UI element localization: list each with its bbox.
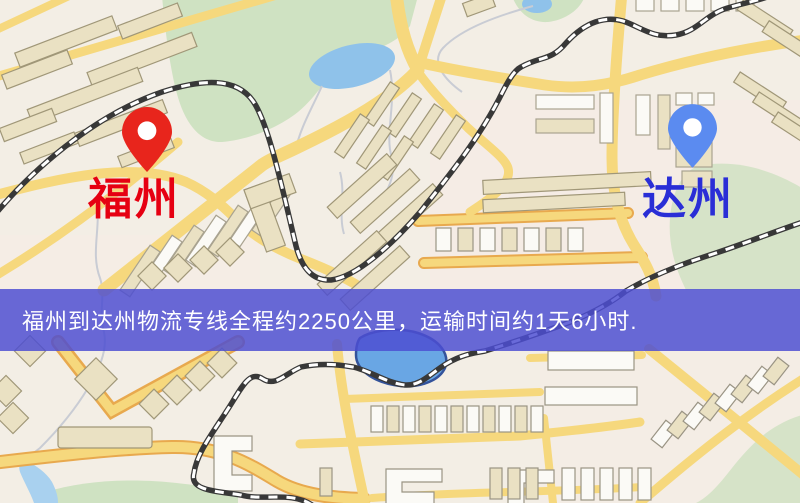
origin-label: 福州 <box>88 178 180 222</box>
destination-pin-icon[interactable] <box>668 104 717 168</box>
banner-text: 福州到达州物流专线全程约2250公里，运输时间约1天6小时. <box>0 304 638 336</box>
map-canvas: 福州 达州 福州到达州物流专线全程约2250公里，运输时间约1天6小时. <box>0 0 800 503</box>
destination-pin-hole <box>683 118 701 136</box>
origin-pin-icon[interactable] <box>122 107 172 172</box>
map-image <box>0 0 800 503</box>
origin-pin-hole <box>138 121 157 140</box>
destination-label: 达州 <box>642 178 734 222</box>
info-banner: 福州到达州物流专线全程约2250公里，运输时间约1天6小时. <box>0 289 800 351</box>
